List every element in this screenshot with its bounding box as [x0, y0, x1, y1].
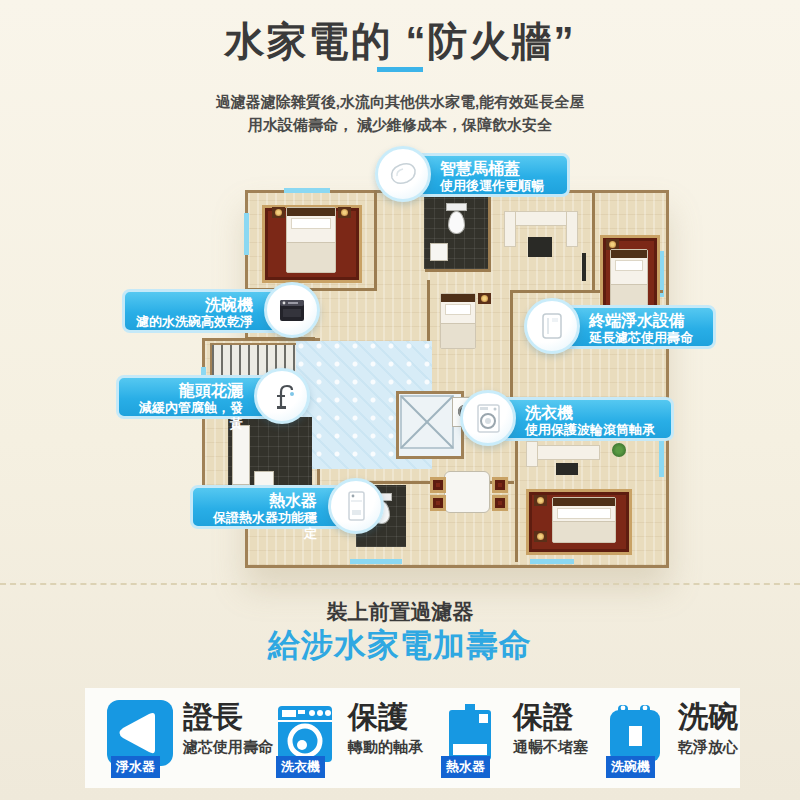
callout-heater: 熱水器 保證熱水器功能穩定	[190, 478, 384, 540]
bedroom-middle	[430, 285, 508, 355]
card-subtitle: 通暢不堵塞	[513, 738, 588, 757]
card-icon: 熱水器	[437, 700, 503, 766]
wall	[592, 193, 595, 293]
callout-smart-toilet: 智慧馬桶蓋 使用後運作更順暢	[375, 146, 570, 206]
callout-subtitle: 減緩內管腐蝕，發黃	[127, 400, 243, 432]
card-badge: 洗碗機	[606, 756, 655, 778]
callout-bubble	[264, 282, 320, 338]
toilet-lid-icon	[386, 157, 420, 191]
callout-subtitle: 使用保護波輪滾筒軸承	[525, 422, 663, 438]
window	[530, 559, 574, 564]
callout-title: 龍頭花灑	[127, 381, 243, 400]
callout-bubble	[460, 390, 516, 446]
faucet-icon	[265, 379, 299, 413]
window	[244, 213, 249, 255]
page-title: 水家電的 “防火牆”	[0, 14, 800, 69]
chair	[430, 495, 446, 511]
window	[350, 559, 402, 564]
benefits-panel: 淨水器 證長 濾芯使用壽命 洗衣機	[85, 688, 740, 788]
sofa	[512, 211, 570, 226]
card-text: 保護 轉動的軸承	[348, 700, 423, 757]
footer-headline: 裝上前置過濾器	[0, 598, 800, 626]
nightstand	[478, 293, 491, 304]
coffee-table	[556, 463, 578, 475]
chair	[430, 477, 446, 493]
nightstand	[534, 531, 547, 542]
page: 水家電的 “防火牆” 過濾器濾除雜質後,水流向其他供水家電,能有效延長全屋 用水…	[0, 0, 800, 800]
nightstand	[534, 495, 547, 506]
bed	[440, 293, 476, 349]
nightstand	[338, 207, 351, 218]
card-text: 洗碗 乾淨放心	[678, 700, 738, 757]
card-badge: 洗衣機	[276, 756, 325, 778]
callout-purifier: 終端淨水設備 延長濾芯使用壽命	[524, 298, 716, 358]
card-icon: 洗碗機	[602, 700, 668, 766]
tv	[582, 253, 586, 281]
bedroom-bottom-right	[518, 483, 634, 557]
callout-title: 智慧馬桶蓋	[440, 159, 559, 178]
card-subtitle: 轉動的軸承	[348, 738, 423, 757]
card-subtitle: 乾淨放心	[678, 738, 738, 757]
sink	[430, 243, 448, 261]
card-icon: 淨水器	[107, 700, 173, 766]
benefit-card-dishwasher: 洗碗機 洗碗 乾淨放心	[602, 698, 762, 782]
sofa-arm	[504, 211, 516, 247]
bed	[286, 207, 336, 273]
chair	[492, 477, 508, 493]
callout-subtitle: 濾的水洗碗高效乾淨	[133, 314, 253, 330]
dashed-divider	[0, 583, 800, 585]
intro-paragraph: 過濾器濾除雜質後,水流向其他供水家電,能有效延長全屋 用水設備壽命， 減少維修成…	[0, 90, 800, 136]
chair	[492, 495, 508, 511]
callout-title: 洗衣機	[525, 403, 663, 422]
intro-line-1: 過濾器濾除雜質後,水流向其他供水家電,能有效延長全屋	[216, 93, 584, 110]
card-badge: 熱水器	[441, 756, 490, 778]
sofa-arm	[566, 211, 578, 247]
water-purifier-icon	[535, 309, 569, 343]
washing-machine-icon	[471, 401, 505, 435]
callout-washer: 洗衣機 使用保護波輪滾筒軸承	[460, 390, 674, 450]
callout-subtitle: 使用後運作更順暢	[440, 178, 559, 194]
dishwasher-icon	[275, 293, 309, 327]
water-heater-icon	[339, 489, 373, 523]
benefit-card-purifier: 淨水器 證長 濾芯使用壽命	[107, 698, 267, 782]
bed	[552, 497, 616, 543]
callout-title: 熱水器	[201, 491, 317, 510]
card-text: 證長 濾芯使用壽命	[183, 700, 273, 757]
coffee-table	[528, 237, 552, 257]
card-text: 保證 通暢不堵塞	[513, 700, 588, 757]
intro-line-2: 用水設備壽命， 減少維修成本，保障飲水安全	[248, 116, 552, 133]
benefit-card-washer: 洗衣機 保護 轉動的軸承	[272, 698, 432, 782]
callout-bubble	[375, 146, 431, 202]
callout-bubble	[524, 298, 580, 354]
wall	[425, 269, 491, 272]
card-badge: 淨水器	[111, 756, 160, 778]
footer-slogan: 給涉水家電加壽命	[0, 624, 800, 668]
elevator-cross-icon	[399, 394, 455, 450]
benefit-card-heater: 熱水器 保證 通暢不堵塞	[437, 698, 597, 782]
dining-area	[420, 461, 512, 523]
card-title: 保護	[348, 700, 423, 734]
card-subtitle: 濾芯使用壽命	[183, 738, 273, 757]
window	[284, 188, 330, 193]
dining-table	[444, 471, 490, 513]
callout-faucet: 龍頭花灑 減緩內管腐蝕，發黃	[116, 368, 310, 430]
callout-title: 洗碗機	[133, 295, 253, 314]
counter	[232, 425, 250, 485]
card-icon: 洗衣機	[272, 700, 338, 766]
card-title: 保證	[513, 700, 588, 734]
callout-subtitle: 保證熱水器功能穩定	[201, 510, 317, 542]
bedroom-top-left	[250, 195, 370, 287]
callout-title: 終端淨水設備	[589, 311, 705, 330]
callout-bubble	[254, 368, 310, 424]
callout-dishwasher: 洗碗機 濾的水洗碗高效乾淨	[122, 282, 320, 342]
nightstand	[272, 207, 285, 218]
card-title: 洗碗	[678, 700, 738, 734]
callout-bubble	[328, 478, 384, 534]
toilet	[448, 211, 465, 234]
title-underline	[377, 67, 423, 72]
card-title: 證長	[183, 700, 273, 734]
living-room-top	[496, 197, 590, 287]
callout-subtitle: 延長濾芯使用壽命	[589, 330, 705, 346]
